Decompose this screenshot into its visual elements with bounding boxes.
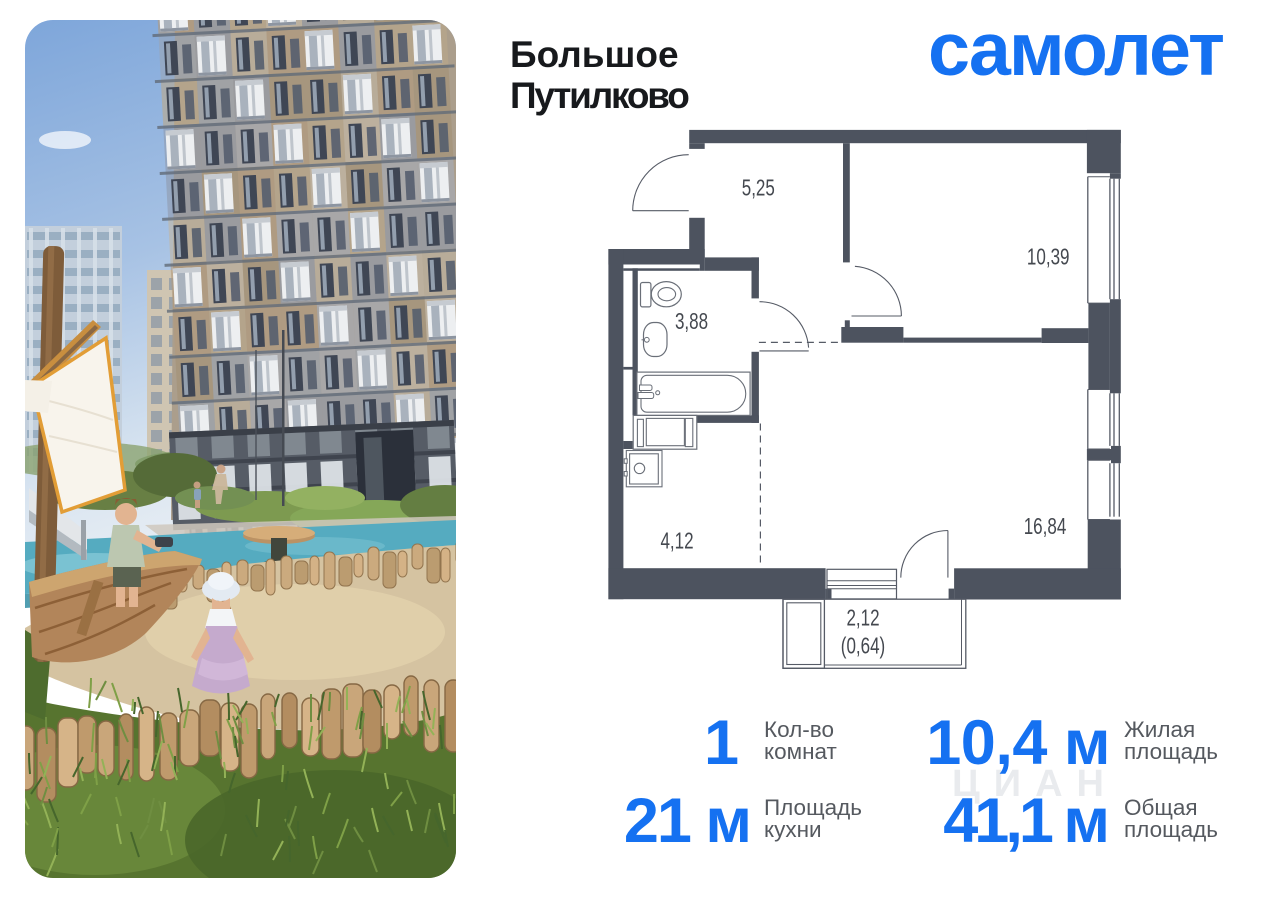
svg-text:4,12: 4,12 [660, 529, 693, 554]
svg-text:10,39: 10,39 [1027, 245, 1070, 270]
svg-text:(0,64): (0,64) [841, 634, 885, 659]
svg-text:5,25: 5,25 [742, 176, 775, 201]
svg-text:3,88: 3,88 [675, 309, 708, 334]
svg-text:16,84: 16,84 [1024, 515, 1067, 540]
svg-text:2,12: 2,12 [846, 606, 879, 631]
